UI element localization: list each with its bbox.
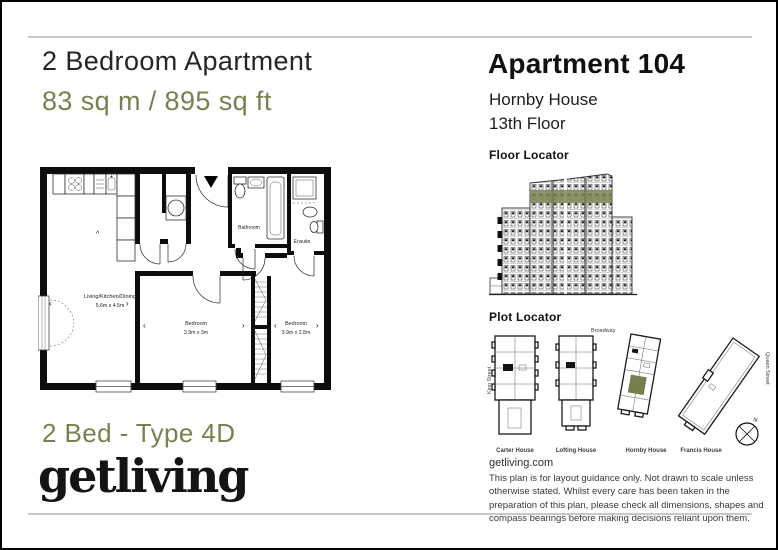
page-title: 2 Bedroom Apartment xyxy=(42,46,312,77)
plot-label-francis: Francis House xyxy=(680,448,722,454)
plot-locator-map: Broadway King Street Queen Street Carter… xyxy=(485,322,777,460)
building-name: Hornby House xyxy=(489,90,598,110)
room-label-ensuite: Ensuite xyxy=(294,239,311,245)
room-dims-bedroom2: 3.9m x 2.8m xyxy=(282,330,311,336)
room-label-bedroom2: Bedroom xyxy=(285,321,307,327)
building-right-wing xyxy=(612,217,632,294)
street-broadway: Broadway xyxy=(591,328,616,334)
plot-label-carter: Carter House xyxy=(496,448,534,454)
toilet-icon xyxy=(234,177,246,184)
shower-icon xyxy=(293,177,316,199)
compass-north-label: N xyxy=(752,417,757,424)
hob-icon xyxy=(65,174,84,194)
bathtub-icon xyxy=(267,177,284,239)
compass-icon: N xyxy=(736,417,758,445)
french-door-window xyxy=(38,296,74,350)
disclaimer-text: This plan is for layout guidance only. N… xyxy=(489,472,765,526)
floorplan-drawing: ‹ › ‹ › ‹ › ^ Living/Kitchen/Dining 5.6m… xyxy=(38,163,362,401)
ensuite-basin-icon xyxy=(303,207,317,217)
floor-number: 13th Floor xyxy=(489,114,566,134)
apartment-number: Apartment 104 xyxy=(488,48,685,80)
dim-arrow: ‹ xyxy=(274,321,277,330)
floor-locator-title: Floor Locator xyxy=(489,148,569,162)
bottom-divider xyxy=(28,513,752,515)
highlighted-unit xyxy=(628,375,647,396)
plot-label-hornby: Hornby House xyxy=(625,448,667,454)
plot-francis-house xyxy=(675,337,760,438)
dim-arrow: › xyxy=(242,321,245,330)
apartment-area: 83 sq m / 895 sq ft xyxy=(42,86,272,117)
floorplan-sheet: 2 Bedroom Apartment 83 sq m / 895 sq ft … xyxy=(0,0,778,550)
dim-arrow: › xyxy=(316,321,319,330)
window xyxy=(96,381,314,392)
highlighted-floor-band xyxy=(530,190,612,203)
dim-arrow: › xyxy=(126,299,129,308)
street-king: King Street xyxy=(487,366,493,394)
dim-arrow: ^ xyxy=(96,231,100,238)
plot-lofting-house xyxy=(556,336,596,430)
plot-carter-house xyxy=(492,336,538,434)
dim-arrow: ‹ xyxy=(143,321,146,330)
getliving-logo: getliving xyxy=(38,449,247,503)
room-label-bedroom1: Bedroom xyxy=(185,321,207,327)
entrance-arrow xyxy=(204,176,218,188)
building-left-wing xyxy=(502,208,530,294)
dim-arrow: ‹ xyxy=(49,299,52,308)
top-divider xyxy=(28,36,752,38)
room-label-bathroom: Bathroom xyxy=(238,225,260,231)
room-dims-living: 5.6m x 4.5m xyxy=(96,303,125,309)
room-dims-bedroom1: 3.9m x 3m xyxy=(184,330,208,336)
plot-hornby-house xyxy=(617,334,660,418)
room-label-living: Living/Kitchen/Dining xyxy=(84,294,136,300)
street-queen: Queen Street xyxy=(764,352,770,385)
website-text: getliving.com xyxy=(489,457,553,469)
unit-type-label: 2 Bed - Type 4D xyxy=(42,418,235,449)
plot-label-lofting: Lofting House xyxy=(556,448,597,454)
floor-locator-elevation xyxy=(489,165,772,301)
